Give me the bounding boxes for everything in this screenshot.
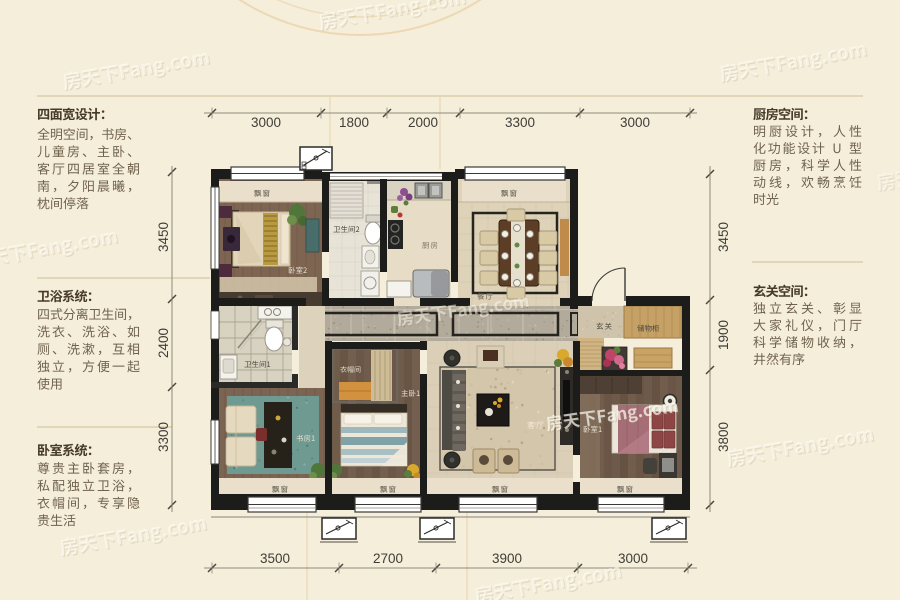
svg-text:3900: 3900: [492, 551, 522, 566]
svg-text:3450: 3450: [156, 222, 171, 252]
svg-text:1800: 1800: [339, 115, 369, 130]
svg-text:3000: 3000: [251, 115, 281, 130]
svg-text:1900: 1900: [716, 320, 731, 350]
svg-text:3800: 3800: [716, 422, 731, 452]
svg-text:2700: 2700: [373, 551, 403, 566]
svg-text:2400: 2400: [156, 328, 171, 358]
svg-text:3000: 3000: [620, 115, 650, 130]
svg-text:3450: 3450: [716, 222, 731, 252]
svg-text:3300: 3300: [156, 422, 171, 452]
svg-text:2000: 2000: [408, 115, 438, 130]
svg-text:3000: 3000: [618, 551, 648, 566]
svg-text:3300: 3300: [505, 115, 535, 130]
svg-text:3500: 3500: [260, 551, 290, 566]
